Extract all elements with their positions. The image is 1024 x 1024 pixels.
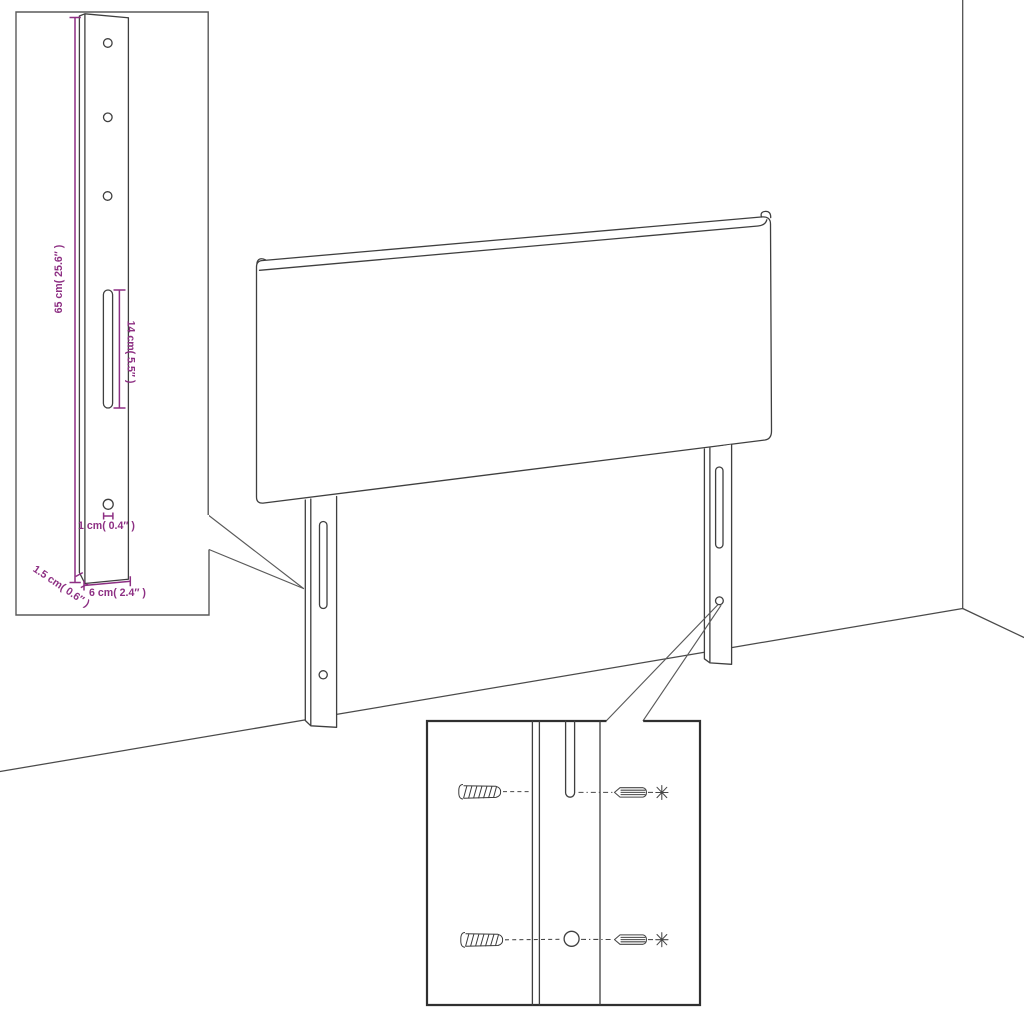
assembly-diagram: 65 cm( 25.6″ ) 14 cm( 5.5″ ) 1 cm( 0.4″ … (0, 0, 1024, 1024)
panel-fill (257, 217, 772, 503)
headboard-leg-left (305, 497, 336, 728)
dimension-height-label: 65 cm( 25.6″ ) (53, 245, 65, 314)
inset2-box-fill (427, 721, 700, 1005)
callout-left-inset-line-2 (209, 550, 304, 589)
left-leg-fill (305, 497, 336, 728)
dimension-width-label: 6 cm( 2.4″ ) (89, 587, 146, 599)
dimension-hole-label: 1 cm( 0.4″ ) (78, 520, 135, 532)
headboard-leg-right (704, 445, 731, 665)
wall-mounting-inset (427, 721, 700, 1005)
screw-top-head (656, 786, 668, 800)
screw-bottom-head (656, 933, 668, 947)
floor-line-right (963, 609, 1024, 638)
dimension-slot-label: 14 cm( 5.5″ ) (125, 321, 137, 384)
right-leg-fill (704, 445, 731, 665)
leg-dimension-inset: 65 cm( 25.6″ ) 14 cm( 5.5″ ) 1 cm( 0.4″ … (16, 12, 209, 615)
headboard-panel (257, 211, 772, 503)
assembly-diagram-page: 65 cm( 25.6″ ) 14 cm( 5.5″ ) 1 cm( 0.4″ … (0, 0, 1024, 1024)
callout-lines (208, 515, 721, 721)
callout-bottom-inset-line-1 (607, 605, 718, 721)
callout-left-inset-line-1 (208, 515, 303, 589)
